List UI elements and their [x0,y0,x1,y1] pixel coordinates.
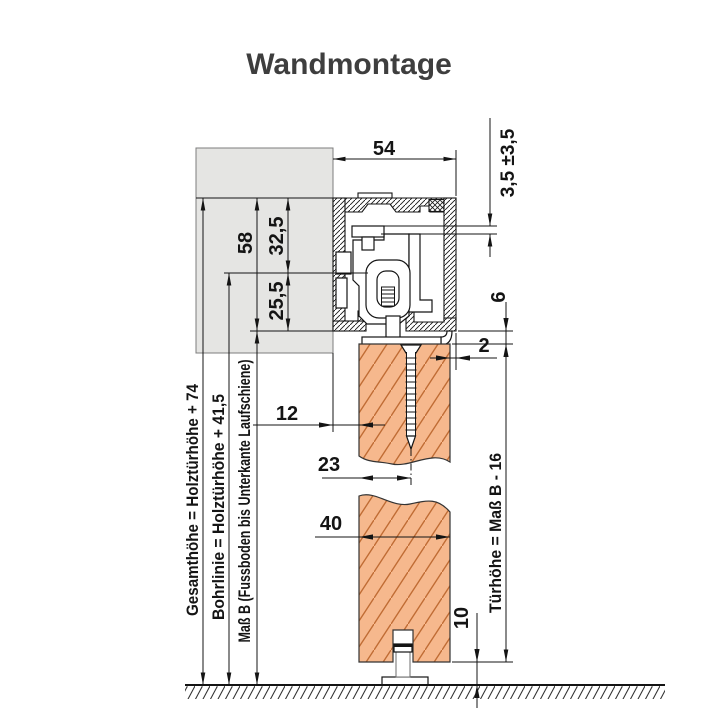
technical-drawing-page: Wandmontage [0,0,713,713]
label-gesamthoehe: Gesamthöhe = Holztürhöhe + 74 [184,383,202,616]
dim-2: 2 [478,335,489,357]
door-panel-upper [359,344,450,465]
label-tuerhoehe: Türhöhe = Maß B - 16 [487,453,505,613]
floor [185,685,665,699]
wall-section [196,148,333,353]
spring-detail [382,287,395,306]
door-panel-lower [359,495,450,662]
dim-25-5: 25,5 [266,282,288,321]
dim-12: 12 [276,403,298,425]
dim-6: 6 [488,291,510,302]
dim-54: 54 [373,138,396,160]
dim-40: 40 [320,513,342,535]
dim-10: 10 [451,607,473,629]
dim-23: 23 [318,454,340,476]
page-title: Wandmontage [246,48,452,81]
dim-58: 58 [235,232,257,254]
label-bohrlinie: Bohrlinie = Holztürhöhe + 41,5 [210,394,228,620]
suspension-bolt-head [352,226,384,237]
label-mass-b: Maß B (Fussboden bis Unterkante Laufschi… [236,360,254,643]
dim-3-5-adjust: 3,5 ±3,5 [498,128,519,197]
dim-32-5: 32,5 [266,217,288,256]
technical-drawing: Wandmontage [0,0,713,713]
